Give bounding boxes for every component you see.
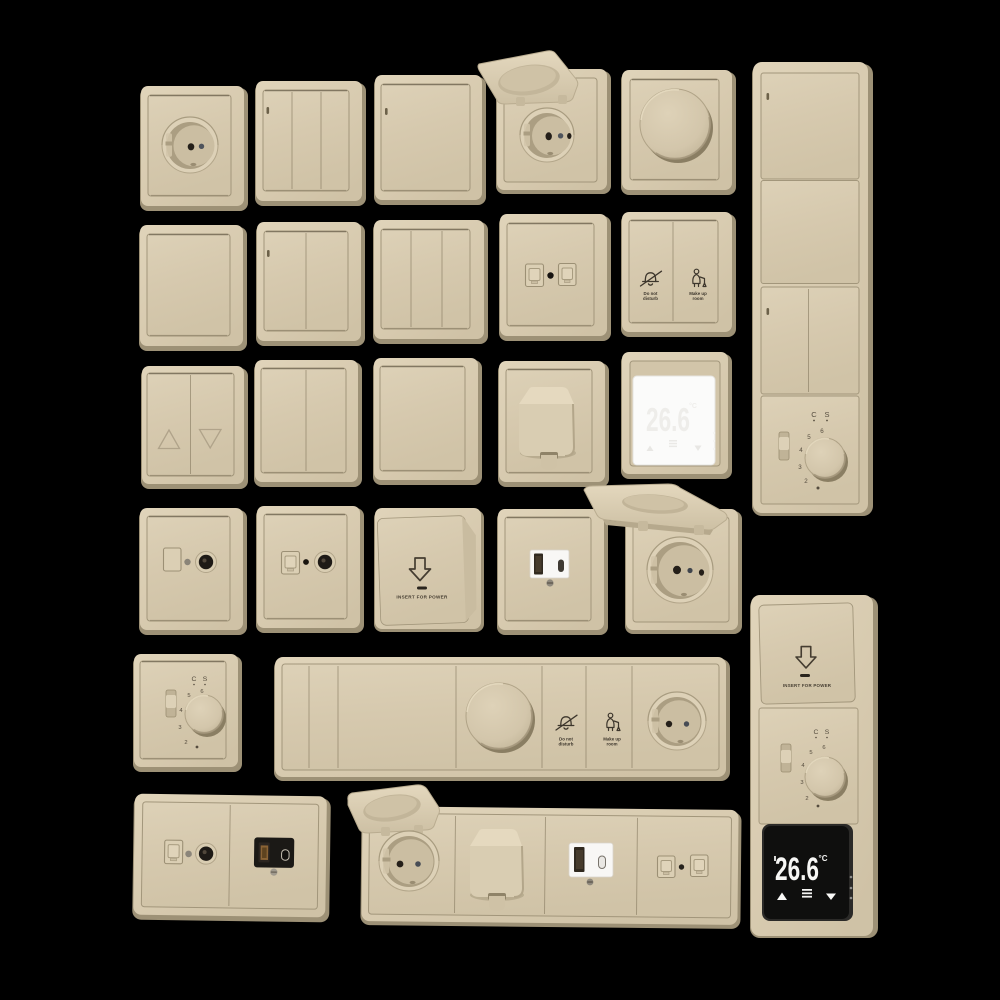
svg-text:S: S xyxy=(824,410,829,419)
svg-text:2: 2 xyxy=(805,796,808,802)
svg-text:°C: °C xyxy=(689,402,697,410)
svg-text:room: room xyxy=(607,742,618,747)
svg-text:6: 6 xyxy=(200,689,203,695)
svg-text:INSERT FOR POWER: INSERT FOR POWER xyxy=(396,595,448,600)
svg-text:6: 6 xyxy=(820,428,824,435)
svg-text:C: C xyxy=(192,676,197,683)
svg-text:C: C xyxy=(814,729,819,736)
svg-text:5: 5 xyxy=(809,750,812,756)
svg-text:disturb: disturb xyxy=(643,296,658,301)
svg-text:6: 6 xyxy=(822,745,825,751)
svg-text:26.6: 26.6 xyxy=(775,851,819,887)
svg-text:26.6: 26.6 xyxy=(646,401,690,438)
svg-text:3: 3 xyxy=(178,725,181,731)
svg-text:room: room xyxy=(693,296,704,301)
svg-text:C: C xyxy=(811,410,817,419)
svg-text:°C: °C xyxy=(819,854,828,863)
svg-text:INSERT FOR POWER: INSERT FOR POWER xyxy=(783,683,832,688)
svg-text:3: 3 xyxy=(798,464,802,471)
svg-text:disturb: disturb xyxy=(559,742,574,747)
svg-text:5: 5 xyxy=(187,693,190,699)
svg-text:2: 2 xyxy=(184,740,187,746)
svg-text:5: 5 xyxy=(807,434,811,441)
svg-text:3: 3 xyxy=(800,780,803,786)
svg-text:S: S xyxy=(825,729,830,736)
svg-text:2: 2 xyxy=(804,478,808,485)
svg-text:S: S xyxy=(203,676,208,683)
svg-text:4: 4 xyxy=(799,447,803,454)
